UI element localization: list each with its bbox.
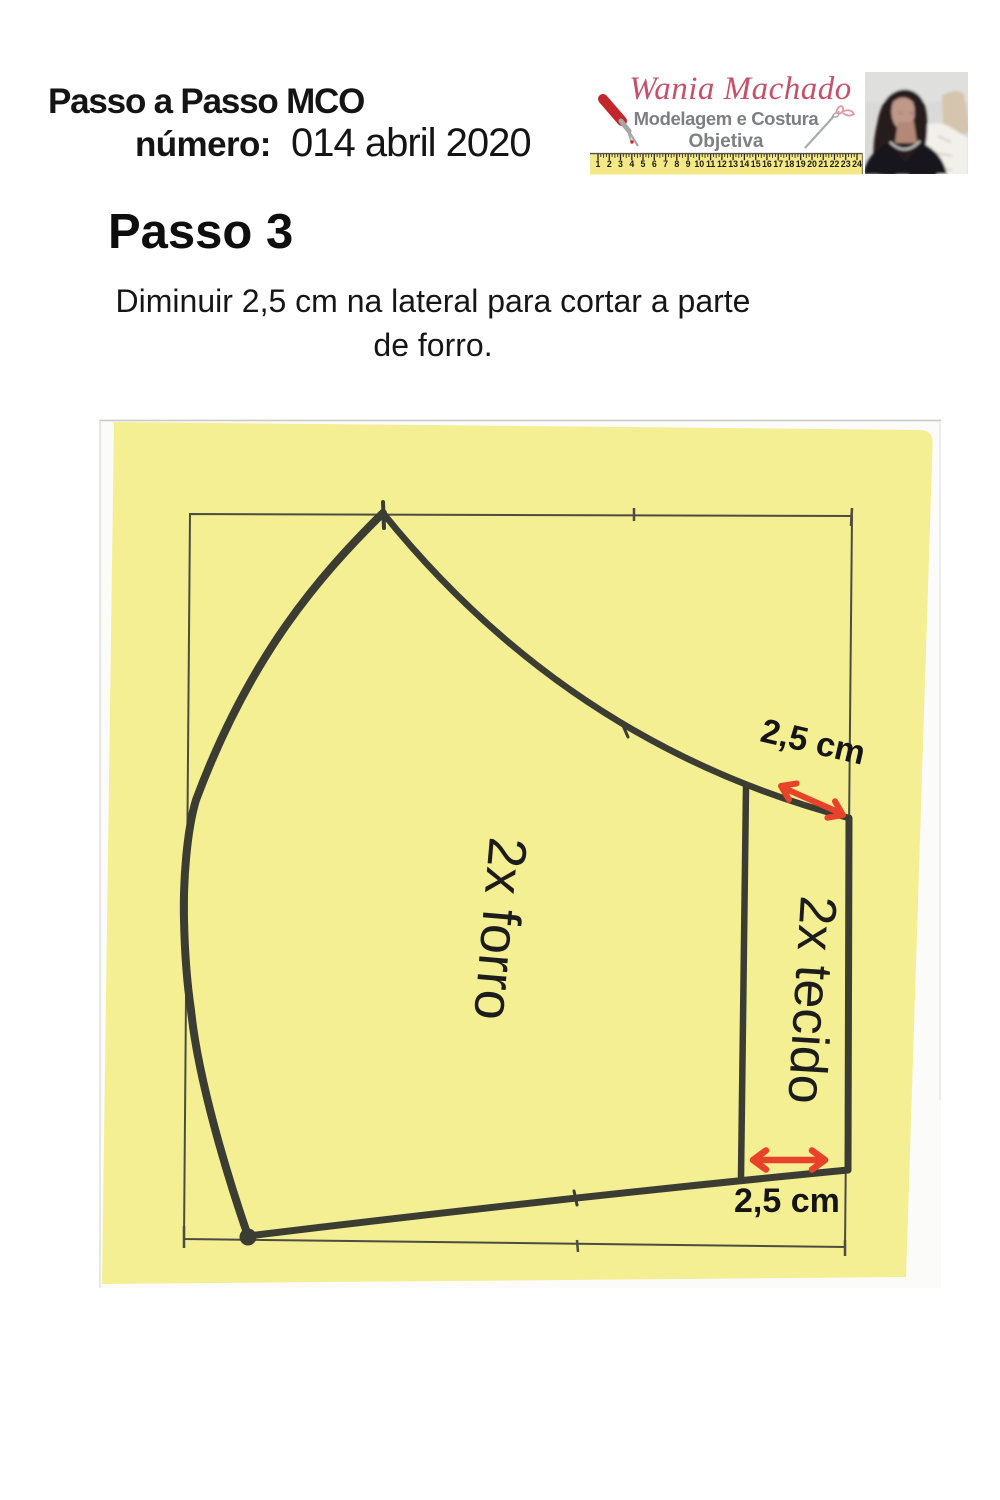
svg-text:2: 2 [607, 159, 612, 169]
svg-text:6: 6 [652, 159, 657, 169]
svg-text:19: 19 [796, 159, 806, 169]
svg-text:14: 14 [740, 159, 750, 169]
svg-text:4: 4 [629, 159, 634, 169]
svg-text:11: 11 [706, 159, 715, 169]
svg-text:17: 17 [773, 159, 783, 169]
svg-text:23: 23 [841, 159, 851, 169]
svg-text:16: 16 [762, 159, 772, 169]
svg-text:8: 8 [674, 159, 679, 169]
svg-text:9: 9 [686, 159, 691, 169]
svg-text:21: 21 [818, 159, 828, 169]
svg-text:2,5 cm: 2,5 cm [734, 1182, 840, 1220]
svg-text:20: 20 [807, 159, 817, 169]
svg-text:18: 18 [785, 159, 795, 169]
svg-text:7: 7 [663, 159, 668, 169]
svg-text:13: 13 [728, 159, 738, 169]
svg-text:22: 22 [830, 159, 840, 169]
svg-text:12: 12 [717, 159, 727, 169]
svg-text:24: 24 [852, 159, 862, 169]
svg-text:15: 15 [751, 159, 761, 169]
svg-text:3: 3 [618, 159, 623, 169]
svg-text:5: 5 [641, 159, 646, 169]
svg-text:1: 1 [596, 159, 601, 169]
svg-text:10: 10 [694, 159, 704, 169]
